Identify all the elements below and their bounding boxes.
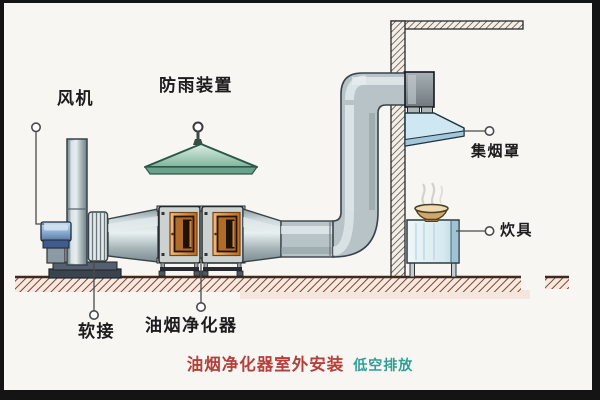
title-sub-text: 低空排放 xyxy=(353,355,413,375)
rain-shield-label: 防雨装置 xyxy=(159,77,233,96)
steam-wisp xyxy=(422,184,424,204)
hood-flange-right xyxy=(422,107,433,113)
hood-leader-dot xyxy=(485,127,493,135)
purifier-leader-dot xyxy=(197,303,205,311)
cone-right xyxy=(243,209,281,262)
fan-leader-line xyxy=(36,132,44,225)
purifier-unit-1 xyxy=(157,206,202,276)
purifier-rail xyxy=(160,267,199,271)
cooker-label: 炊具 xyxy=(500,222,533,239)
title-main-text: 油烟净化器室外安装 xyxy=(187,351,345,375)
smoke-hood-assembly xyxy=(405,72,464,146)
fan-pedestal xyxy=(47,248,65,263)
rain-shield-rim xyxy=(145,167,257,174)
rain-shield-device xyxy=(145,123,257,175)
fan-motor-band xyxy=(43,240,69,248)
cooking-stove xyxy=(407,183,459,277)
rain-shield-stem xyxy=(197,131,200,140)
wall-hatched xyxy=(391,21,405,277)
stove-leg xyxy=(452,263,457,277)
purifier-rail xyxy=(203,267,242,271)
fan-label: 风机 xyxy=(57,90,94,109)
exhaust-stack xyxy=(67,139,87,265)
rain-shield-knob xyxy=(194,123,203,132)
diagram-title: 油烟净化器室外安装 低空排放 xyxy=(0,351,600,375)
cone-left xyxy=(108,209,158,262)
flexible-connector xyxy=(89,212,108,261)
ceiling-hatched xyxy=(391,21,523,29)
ground-hatch-band xyxy=(15,278,521,292)
ground xyxy=(15,277,569,299)
stove-leg xyxy=(410,263,415,277)
flex-joint-label: 软接 xyxy=(78,323,115,342)
cooker-leader-dot xyxy=(485,227,493,235)
flex-joint-leader-dot xyxy=(90,311,98,319)
inlet-cone xyxy=(108,209,158,262)
purifier-label: 油烟净化器 xyxy=(145,317,238,336)
bowl-rim xyxy=(415,205,448,213)
smoke-hood-label: 集烟罩 xyxy=(471,143,521,160)
exhaust-stack-highlight xyxy=(71,141,76,263)
installation-diagram: 风机 防雨装置 集烟罩 炊具 软接 油烟净化器 油烟净化器室外安装 低空排放 xyxy=(0,0,600,400)
outlet-duct xyxy=(243,209,334,262)
fan-assembly xyxy=(41,139,121,278)
ground-hatch-small xyxy=(545,278,569,289)
rain-shield-canopy xyxy=(145,144,257,167)
steam-wisp xyxy=(432,183,434,205)
fan-housing-highlight xyxy=(44,225,68,231)
fan-leader-dot xyxy=(32,123,40,131)
purifier-unit-2 xyxy=(200,206,245,276)
steam-wisp xyxy=(440,186,442,203)
hood-flange-left xyxy=(408,107,420,113)
